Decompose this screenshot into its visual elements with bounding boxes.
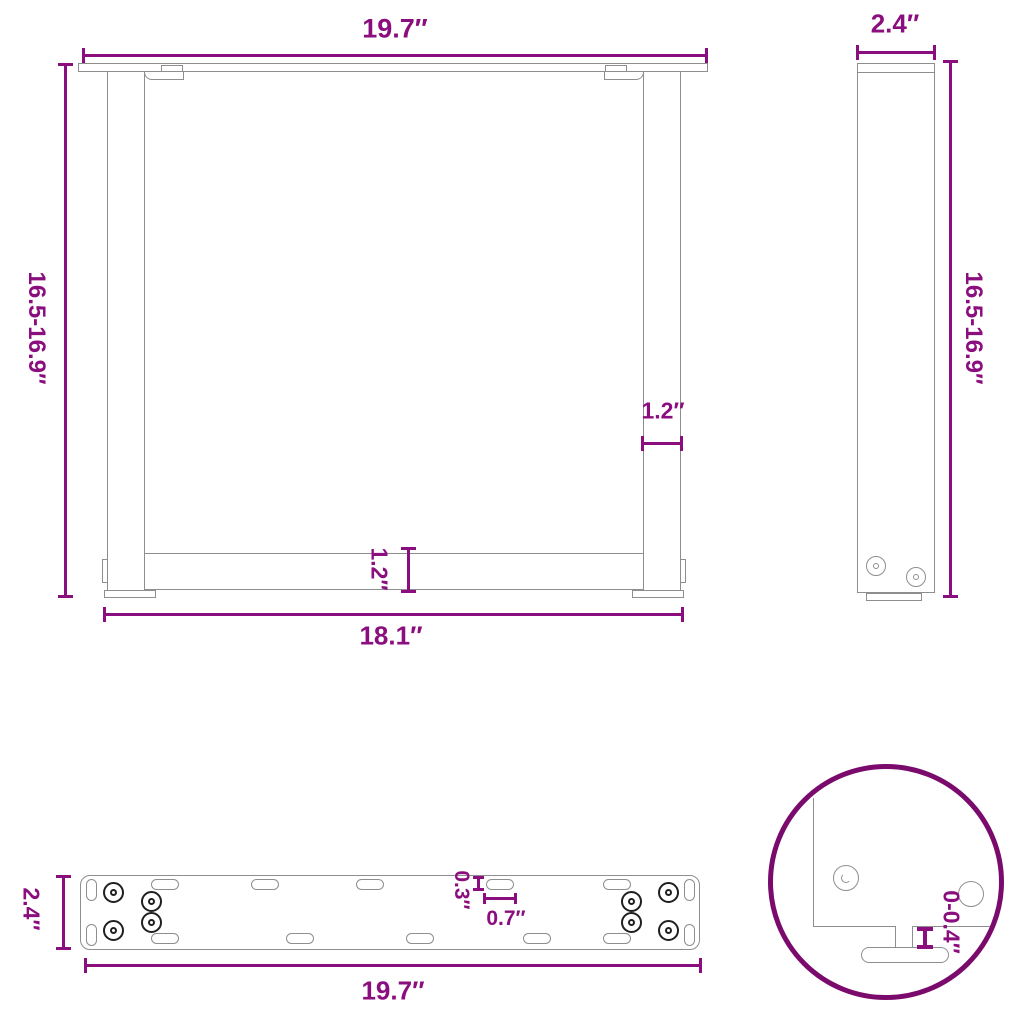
- front-leg-thickness-dim: [641, 442, 683, 445]
- front-right-flange: [604, 72, 644, 80]
- front-top-width-label: 19.7″: [362, 14, 427, 45]
- plate-slot-width-dim: [477, 876, 480, 891]
- plate-screw-hole-center: [110, 927, 117, 934]
- plate-slot-length-dim: [483, 897, 517, 900]
- plate-slot-bottom-row: [523, 933, 551, 944]
- plate-slot-bottom-row: [603, 933, 631, 944]
- front-right-bracket: [680, 559, 686, 583]
- front-left-leg: [107, 72, 145, 590]
- plate-slot-top-row: [603, 879, 631, 890]
- plate-length-dim: [84, 964, 702, 967]
- front-right-tab: [605, 65, 627, 72]
- plate-slot-bottom-row: [286, 933, 314, 944]
- front-left-foot: [104, 590, 156, 598]
- plate-end-slot: [684, 879, 695, 901]
- side-screw: [906, 567, 926, 587]
- plate-slot-bottom-row: [151, 933, 179, 944]
- plate-slot-top-row: [151, 879, 179, 890]
- plate-screw-hole-center: [628, 919, 635, 926]
- side-screw-center: [873, 563, 879, 569]
- plate-depth-dim: [62, 875, 65, 950]
- detail-foot-base: [861, 947, 949, 963]
- plate-slot-top-row: [356, 879, 384, 890]
- plate-screw-hole: [103, 920, 124, 941]
- plate-screw-hole: [141, 912, 162, 933]
- plate-slot-length-label: 0.7″: [486, 907, 525, 931]
- front-crossbar-thickness-dim: [407, 547, 410, 593]
- detail-leg-left-edge: [813, 798, 814, 926]
- front-top-width-dim: [82, 54, 708, 57]
- plate-screw-hole-center: [148, 919, 155, 926]
- plate-screw-hole: [141, 891, 162, 912]
- plate-screw-hole: [658, 882, 679, 903]
- side-plate-seam: [857, 72, 935, 73]
- side-depth-dim: [856, 51, 936, 54]
- front-crossbar-thickness-label: 1.2″: [366, 548, 393, 591]
- plate-length-label: 19.7″: [361, 976, 424, 1007]
- front-right-foot: [632, 590, 684, 598]
- front-left-bracket: [102, 559, 108, 583]
- dimension-diagram: 19.7″ 16.5-16.9″ 1.2″ 1.2″ 18.1″ 2.4″ 16…: [0, 0, 1024, 1024]
- plate-end-slot: [86, 879, 97, 901]
- front-left-flange: [144, 72, 184, 80]
- side-foot: [866, 593, 922, 601]
- plate-end-slot: [86, 924, 97, 946]
- plate-screw-hole: [103, 882, 124, 903]
- plate-slot-bottom-row: [406, 933, 434, 944]
- plate-screw-hole-center: [110, 889, 117, 896]
- front-bottom-width-dim: [103, 613, 684, 616]
- detail-foot-stem: [895, 926, 913, 949]
- front-left-tab: [161, 65, 183, 72]
- front-height-dim: [64, 63, 67, 598]
- front-right-leg: [643, 72, 681, 590]
- side-depth-label: 2.4″: [871, 9, 920, 40]
- front-bottom-width-label: 18.1″: [359, 621, 422, 652]
- side-column: [857, 63, 935, 593]
- detail-view-circle: 0-0.4″: [768, 764, 1004, 1000]
- plate-screw-hole: [658, 920, 679, 941]
- detail-adjust-label: 0-0.4″: [938, 890, 965, 953]
- plate-screw-hole-center: [628, 898, 635, 905]
- front-height-label: 16.5-16.9″: [22, 272, 50, 385]
- plate-depth-label: 2.4″: [18, 888, 45, 931]
- plate-screw-hole: [621, 891, 642, 912]
- detail-leg-right-edge: [999, 860, 1000, 926]
- plate-screw-hole: [621, 912, 642, 933]
- side-screw: [866, 556, 886, 576]
- detail-adjust-dim: [923, 927, 927, 949]
- side-height-label: 16.5-16.9″: [959, 272, 987, 385]
- front-crossbar: [145, 553, 643, 590]
- plate-screw-hole-center: [665, 889, 672, 896]
- plate-slot-top-row: [251, 879, 279, 890]
- side-height-dim: [949, 60, 952, 598]
- plate-end-slot: [684, 924, 695, 946]
- detail-screw-left-arc: [841, 873, 851, 883]
- front-leg-thickness-label: 1.2″: [642, 398, 685, 425]
- plate-screw-hole-center: [665, 927, 672, 934]
- side-screw-center: [913, 574, 919, 580]
- plate-slot-top-row: [486, 879, 514, 890]
- plate-screw-hole-center: [148, 898, 155, 905]
- plate-slot-width-label: 0.3″: [449, 870, 473, 909]
